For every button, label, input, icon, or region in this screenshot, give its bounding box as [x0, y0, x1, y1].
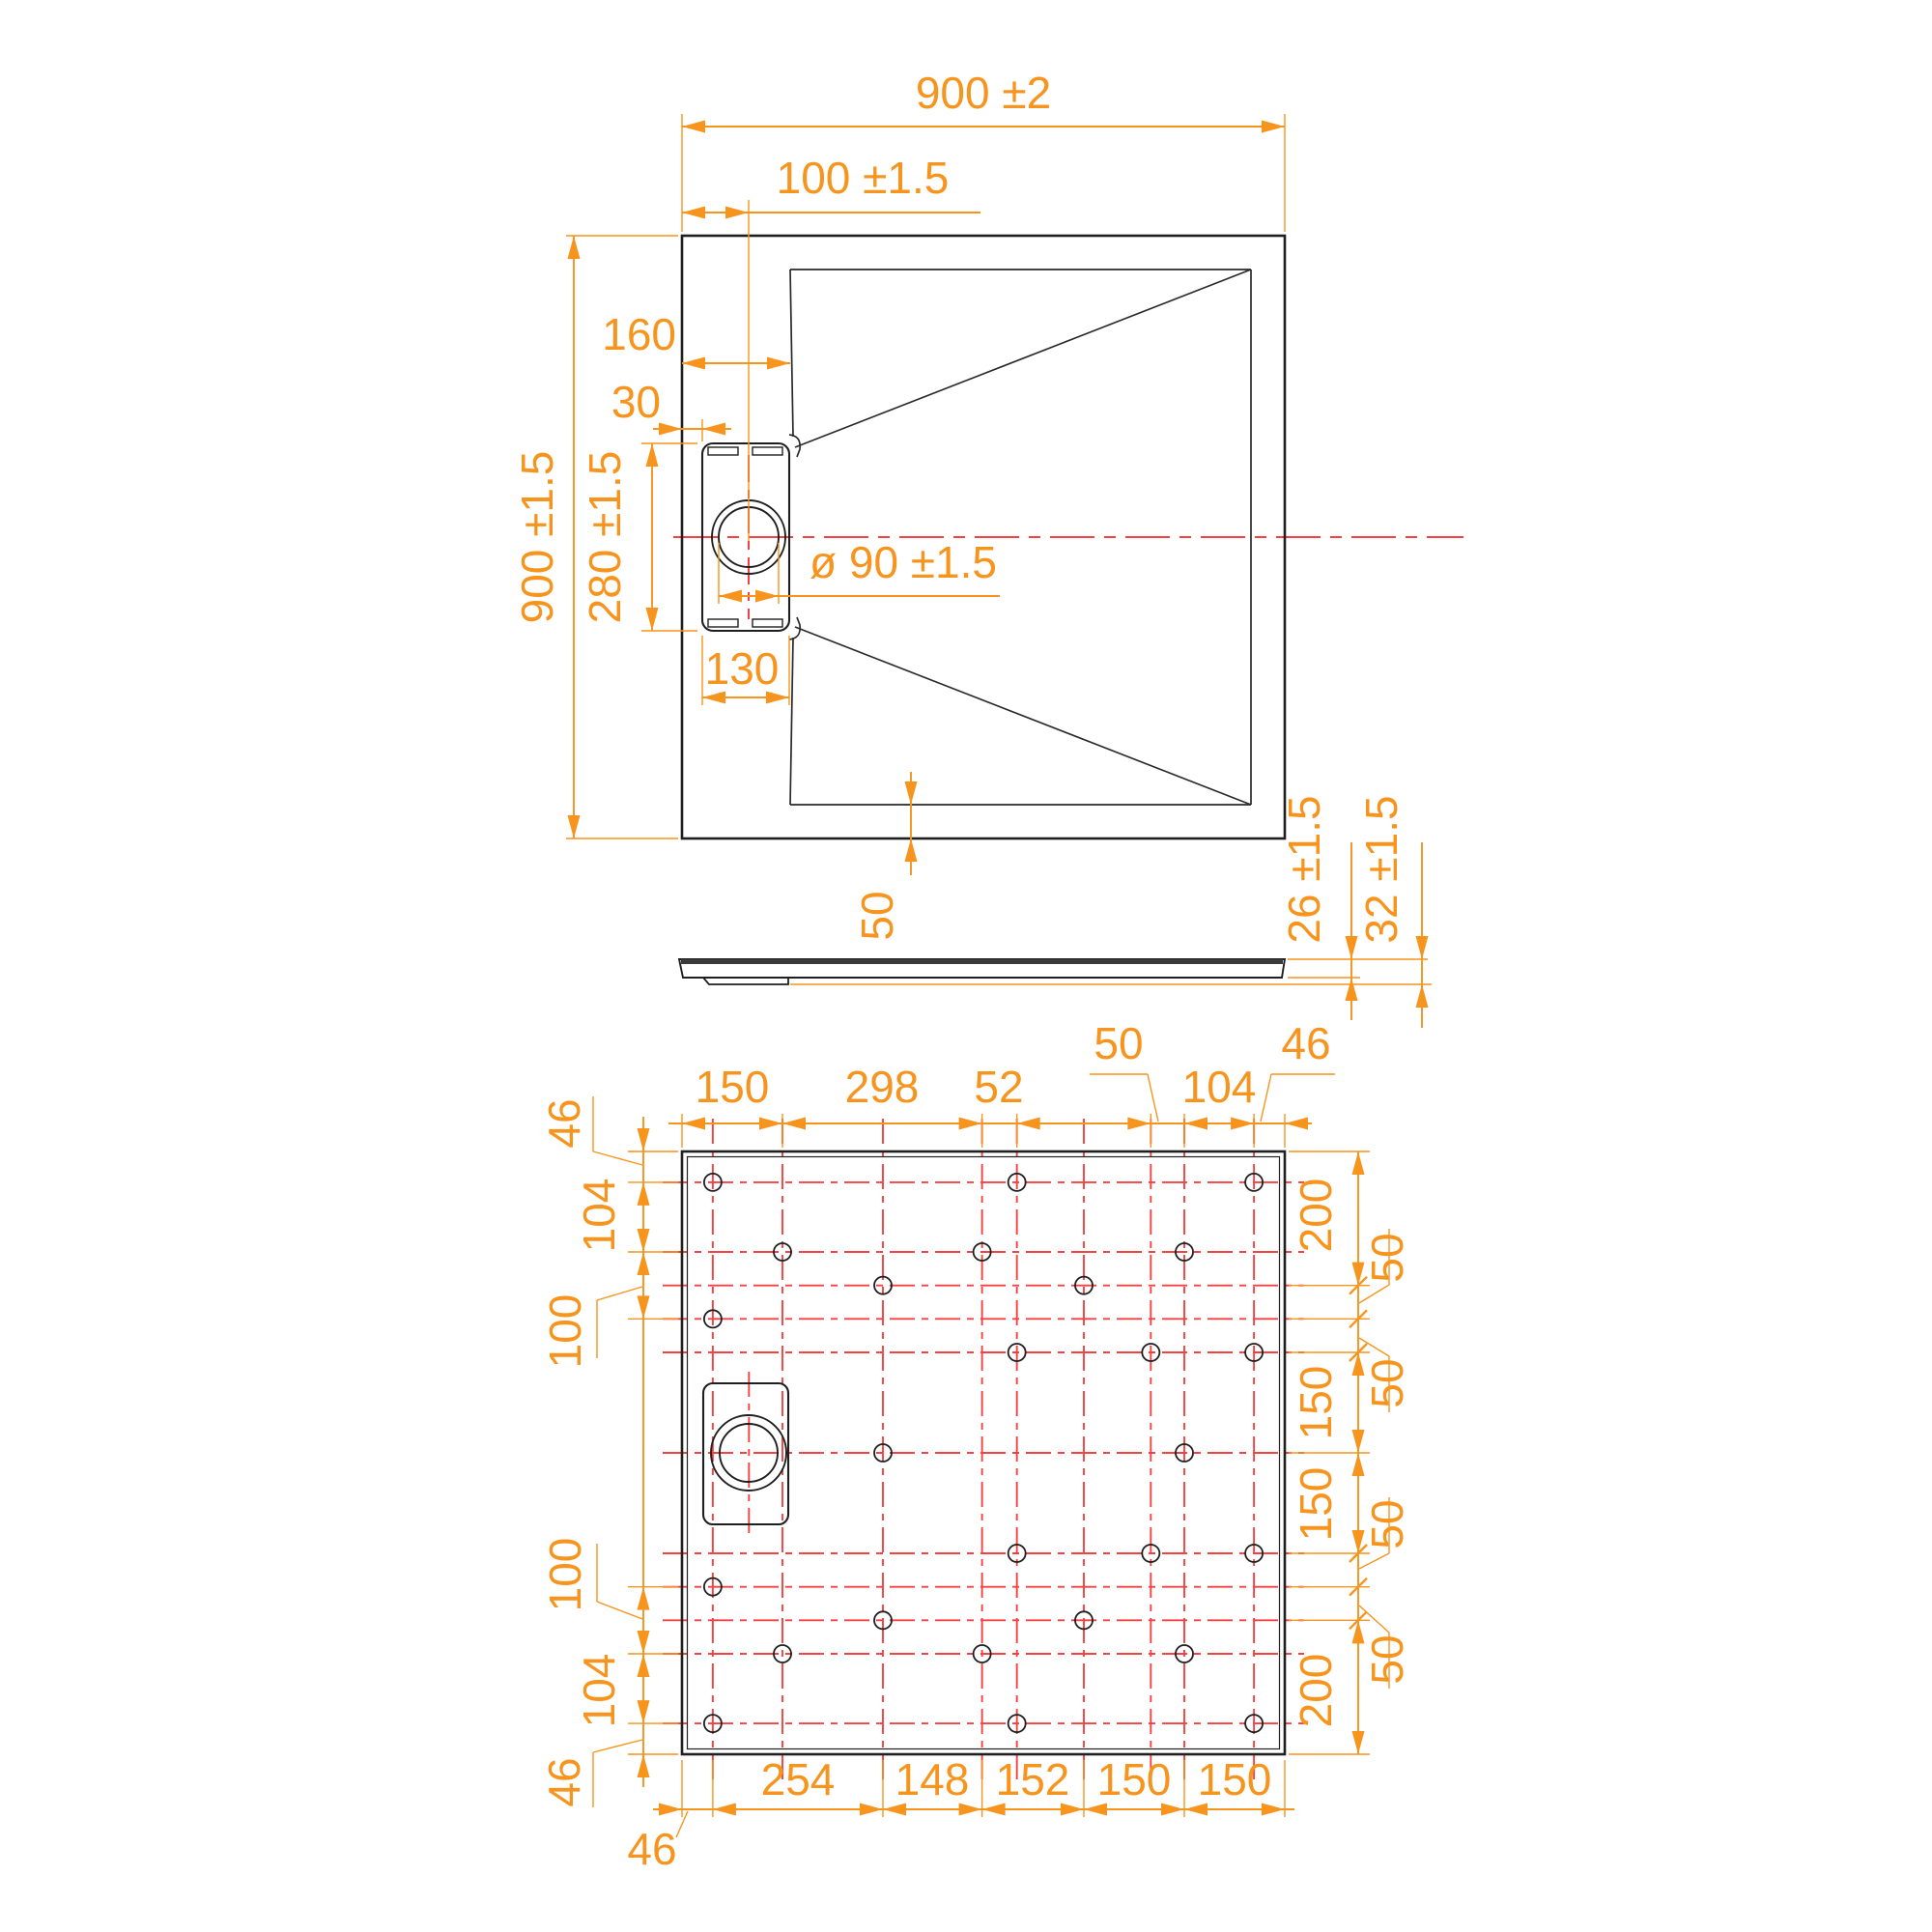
dimension-arrowhead — [568, 236, 581, 259]
dim-bottom-top-298: 298 — [845, 1062, 920, 1112]
dim-plan-drain-diameter: ø 90 ±1.5 — [810, 537, 997, 587]
dimension-arrowhead — [905, 838, 918, 862]
dim-bottom-right-50a: 50 — [1362, 1233, 1412, 1282]
dimension-arrowhead — [1084, 1804, 1107, 1816]
dimension-arrowhead — [638, 1128, 650, 1151]
dimension-arrowhead — [1262, 121, 1285, 133]
dim-bottom-bot-150b: 150 — [1198, 1754, 1272, 1804]
dim-bottom-bot-150a: 150 — [1097, 1754, 1172, 1804]
plan-drain-clamp-top-right — [753, 447, 782, 455]
dimension-arrowhead — [959, 1804, 982, 1816]
dimension-arrowhead — [638, 1229, 650, 1252]
dim-plan-overall-height: 900 ±1.5 — [512, 451, 562, 624]
dim-bottom-left-104b: 104 — [574, 1654, 624, 1728]
dimension-arrowhead — [1346, 978, 1358, 1001]
dimension-arrowhead — [638, 1182, 650, 1206]
dimension-arrowhead — [1352, 1151, 1365, 1175]
dim-bottom-right-150a: 150 — [1291, 1366, 1341, 1440]
dim-side-total-height: 32 ±1.5 — [1356, 795, 1406, 943]
dimension-arrowhead — [1184, 1118, 1207, 1130]
dimension-arrowhead — [1017, 1118, 1040, 1130]
dimension-arrowhead — [883, 1804, 906, 1816]
dim-plan-box-offset: 30 — [611, 377, 661, 427]
dimension-arrowhead — [1061, 1804, 1084, 1816]
dimension-arrowhead — [782, 1118, 806, 1130]
dim-plan-basin-inset: 160 — [602, 309, 676, 359]
plan-centerlines — [673, 455, 1463, 619]
dimension-arrowhead — [1161, 1804, 1184, 1816]
dim-bottom-left-100b: 100 — [540, 1538, 590, 1612]
technical-drawing-page: 900 ±2 100 ±1.5 160 30 900 ±1.5 280 ±1.5… — [0, 0, 1932, 1932]
side-view: 26 ±1.5 32 ±1.5 — [679, 795, 1406, 984]
dim-bottom-top-52: 52 — [974, 1062, 1023, 1112]
dim-bottom-top-50: 50 — [1094, 1018, 1143, 1068]
dimension-arrowhead — [646, 608, 659, 631]
dimension-arrowhead — [860, 1804, 883, 1816]
dimension-arrowhead — [1262, 1804, 1285, 1816]
dimension-arrowhead — [659, 423, 682, 436]
dimension-arrowhead — [638, 1252, 650, 1275]
dimension-arrowhead — [905, 781, 918, 805]
dimension-arrowhead — [1231, 1118, 1254, 1130]
dimension-arrowhead — [719, 590, 742, 603]
plan-drain-clamp-top-left — [708, 447, 738, 455]
dimension-arrowhead — [1416, 936, 1429, 959]
dim-bottom-left-100t: 100 — [540, 1294, 590, 1369]
dim-side-thickness: 26 ±1.5 — [1279, 795, 1329, 943]
dimension-arrowhead — [638, 1631, 650, 1654]
dim-bottom-bot-148: 148 — [895, 1754, 970, 1804]
dimension-arrowhead — [1127, 1118, 1151, 1130]
dim-bottom-left-104t: 104 — [574, 1179, 624, 1253]
dimension-arrowhead — [1416, 984, 1429, 1008]
dimension-arrowhead — [982, 1804, 1006, 1816]
dimension-arrowhead — [1285, 1118, 1308, 1130]
dim-bottom-top-150: 150 — [696, 1062, 770, 1112]
dimension-arrowhead — [659, 1804, 682, 1816]
dimension-arrowhead — [682, 1118, 705, 1130]
dim-bottom-left-46b: 46 — [539, 1757, 589, 1806]
dim-plan-drain-offset: 100 ±1.5 — [777, 153, 950, 203]
dimension-arrowhead — [702, 423, 725, 436]
dimension-arrowhead — [638, 1587, 650, 1610]
dimension-arrowhead — [1352, 1731, 1365, 1754]
dim-bottom-right-150b: 150 — [1291, 1467, 1341, 1542]
dimension-arrowhead — [759, 1118, 782, 1130]
dimension-arrowhead — [646, 443, 659, 467]
dim-bottom-right-50c: 50 — [1362, 1499, 1412, 1548]
plan-drain-clamp-bottom-left — [708, 619, 738, 627]
bottom-centerlines — [663, 1119, 1304, 1785]
plan-slope-diagonal-bottom — [795, 627, 1251, 805]
plan-slope-diagonal-top — [795, 270, 1251, 447]
dimension-arrowhead — [682, 121, 705, 133]
dimension-arrowhead — [638, 1295, 650, 1319]
dim-bottom-left-46t: 46 — [539, 1098, 589, 1148]
dim-bottom-right-200b: 200 — [1291, 1654, 1341, 1728]
dimension-arrowhead — [725, 207, 749, 219]
bottom-view: 150 298 52 50 104 46 46 254 148 152 150 … — [539, 1018, 1412, 1874]
dimension-arrowhead — [755, 590, 779, 603]
dimension-arrowhead — [959, 1118, 982, 1130]
plan-drain-clamp-bottom-right — [753, 619, 782, 627]
dimension-arrowhead — [1184, 1804, 1207, 1816]
dimension-arrowhead — [682, 357, 705, 370]
dim-bottom-right-50d: 50 — [1362, 1634, 1412, 1684]
shower-tray-drawing: 900 ±2 100 ±1.5 160 30 900 ±1.5 280 ±1.5… — [0, 0, 1932, 1932]
dimension-arrowhead — [638, 1700, 650, 1723]
dimension-arrowhead — [1352, 1453, 1365, 1476]
dim-plan-overall-width: 900 ±2 — [916, 68, 1051, 118]
dim-plan-box-height: 280 ±1.5 — [580, 451, 630, 624]
dimension-arrowhead — [713, 1804, 736, 1816]
dim-bottom-bot-46: 46 — [627, 1824, 676, 1874]
dim-bottom-bot-254: 254 — [761, 1754, 836, 1804]
dim-plan-box-width: 130 — [705, 643, 780, 694]
dim-bottom-right-200t: 200 — [1291, 1179, 1341, 1253]
dim-bottom-top-46: 46 — [1281, 1018, 1330, 1068]
dimension-arrowhead — [682, 207, 705, 219]
dimension-arrowhead — [638, 1754, 650, 1777]
dimension-arrowhead — [767, 357, 790, 370]
dimension-arrowhead — [568, 815, 581, 838]
dim-bottom-bot-152: 152 — [996, 1754, 1070, 1804]
bottom-drain-assembly — [703, 1383, 788, 1524]
dimension-arrowhead — [638, 1654, 650, 1677]
dimension-arrowhead — [1346, 936, 1358, 959]
dim-bottom-right-50b: 50 — [1362, 1358, 1412, 1407]
bottom-drain-box — [703, 1383, 788, 1524]
dimension-arrowhead — [1352, 1430, 1365, 1453]
side-drain-housing — [703, 978, 788, 984]
dim-bottom-top-104: 104 — [1182, 1062, 1257, 1112]
dim-plan-border-width: 50 — [852, 891, 902, 940]
